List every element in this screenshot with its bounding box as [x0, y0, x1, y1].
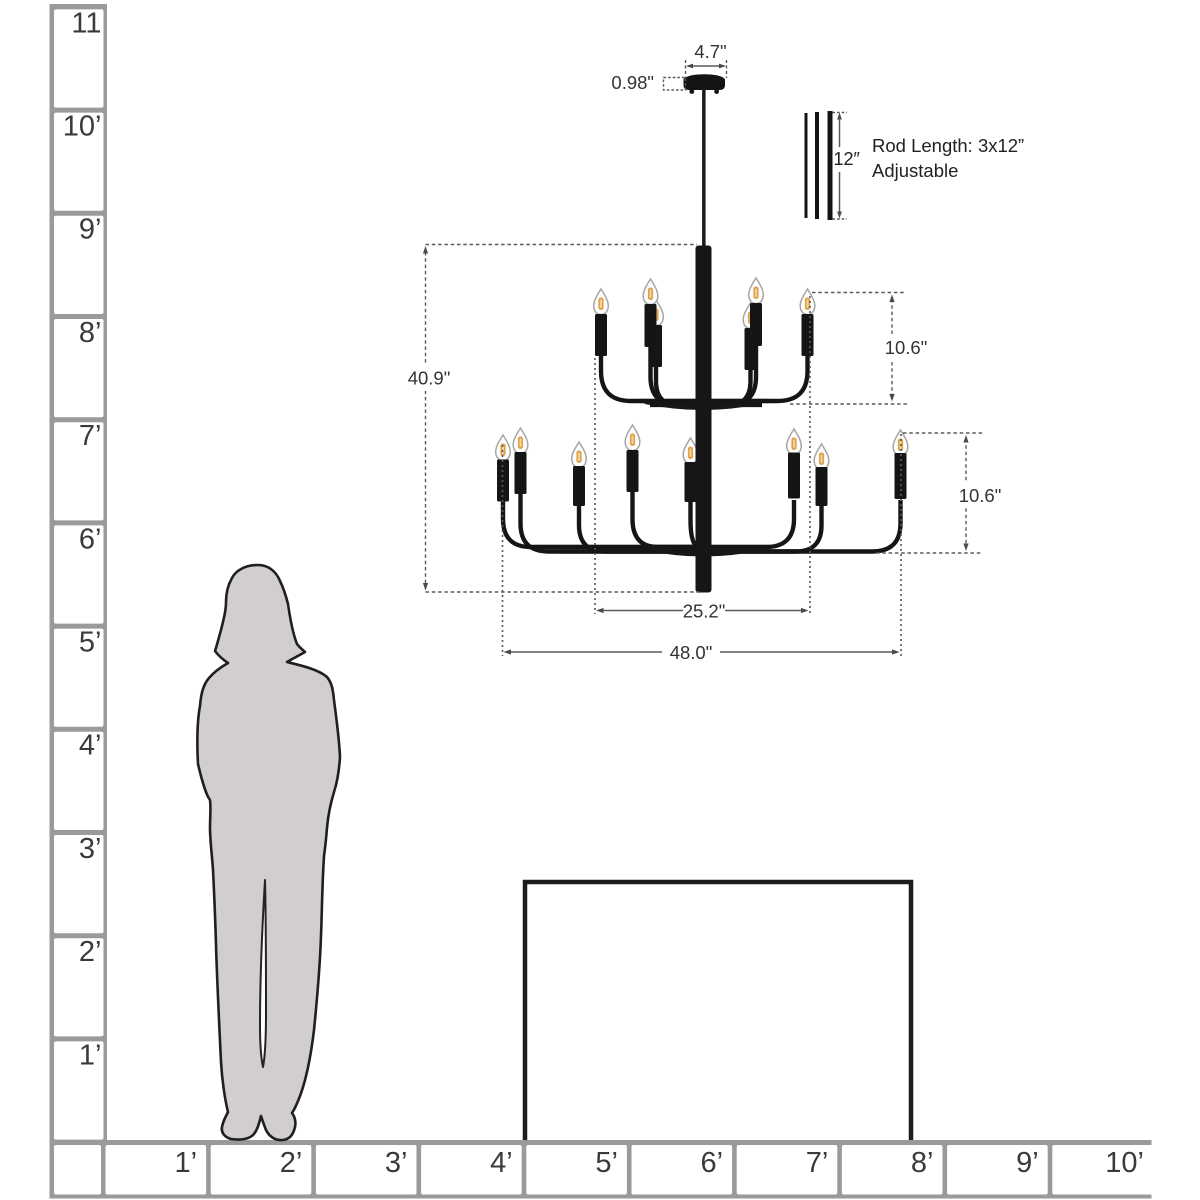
- svg-text:Rod Length: 3x12”: Rod Length: 3x12”: [872, 135, 1024, 156]
- svg-text:10.6": 10.6": [885, 337, 928, 358]
- svg-text:3’: 3’: [79, 833, 102, 865]
- svg-text:0.98": 0.98": [611, 72, 654, 93]
- svg-text:4.7": 4.7": [694, 41, 726, 62]
- svg-text:7’: 7’: [79, 420, 102, 452]
- svg-text:25.2": 25.2": [683, 601, 726, 622]
- svg-text:Adjustable: Adjustable: [872, 160, 958, 181]
- svg-text:12″: 12″: [834, 149, 861, 169]
- svg-text:6’: 6’: [701, 1147, 724, 1179]
- svg-text:10.6": 10.6": [959, 485, 1002, 506]
- svg-text:40.9": 40.9": [408, 368, 451, 389]
- svg-text:1’: 1’: [175, 1147, 198, 1179]
- svg-text:10’: 10’: [1105, 1147, 1144, 1179]
- svg-text:10’: 10’: [63, 111, 102, 143]
- svg-text:1’: 1’: [79, 1039, 102, 1071]
- svg-text:4’: 4’: [79, 730, 102, 762]
- svg-text:8’: 8’: [911, 1147, 934, 1179]
- svg-text:2’: 2’: [280, 1147, 303, 1179]
- svg-text:4’: 4’: [490, 1147, 513, 1179]
- svg-text:5’: 5’: [595, 1147, 618, 1179]
- svg-text:48.0": 48.0": [670, 642, 713, 663]
- svg-text:9’: 9’: [1016, 1147, 1039, 1179]
- svg-text:11: 11: [71, 7, 101, 39]
- svg-text:8’: 8’: [79, 317, 102, 349]
- svg-text:2’: 2’: [79, 936, 102, 968]
- svg-text:3’: 3’: [385, 1147, 408, 1179]
- svg-text:5’: 5’: [79, 627, 102, 659]
- svg-text:6’: 6’: [79, 523, 102, 555]
- svg-text:9’: 9’: [79, 214, 102, 246]
- svg-text:7’: 7’: [806, 1147, 829, 1179]
